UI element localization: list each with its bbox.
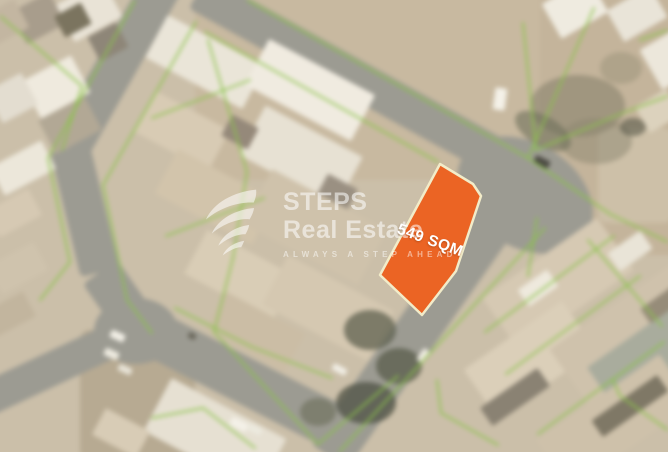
highlighted-plot	[0, 0, 668, 452]
satellite-listing-image: STEPS Real Estate ALWAYS A STEP AHEAD 54…	[0, 0, 668, 452]
